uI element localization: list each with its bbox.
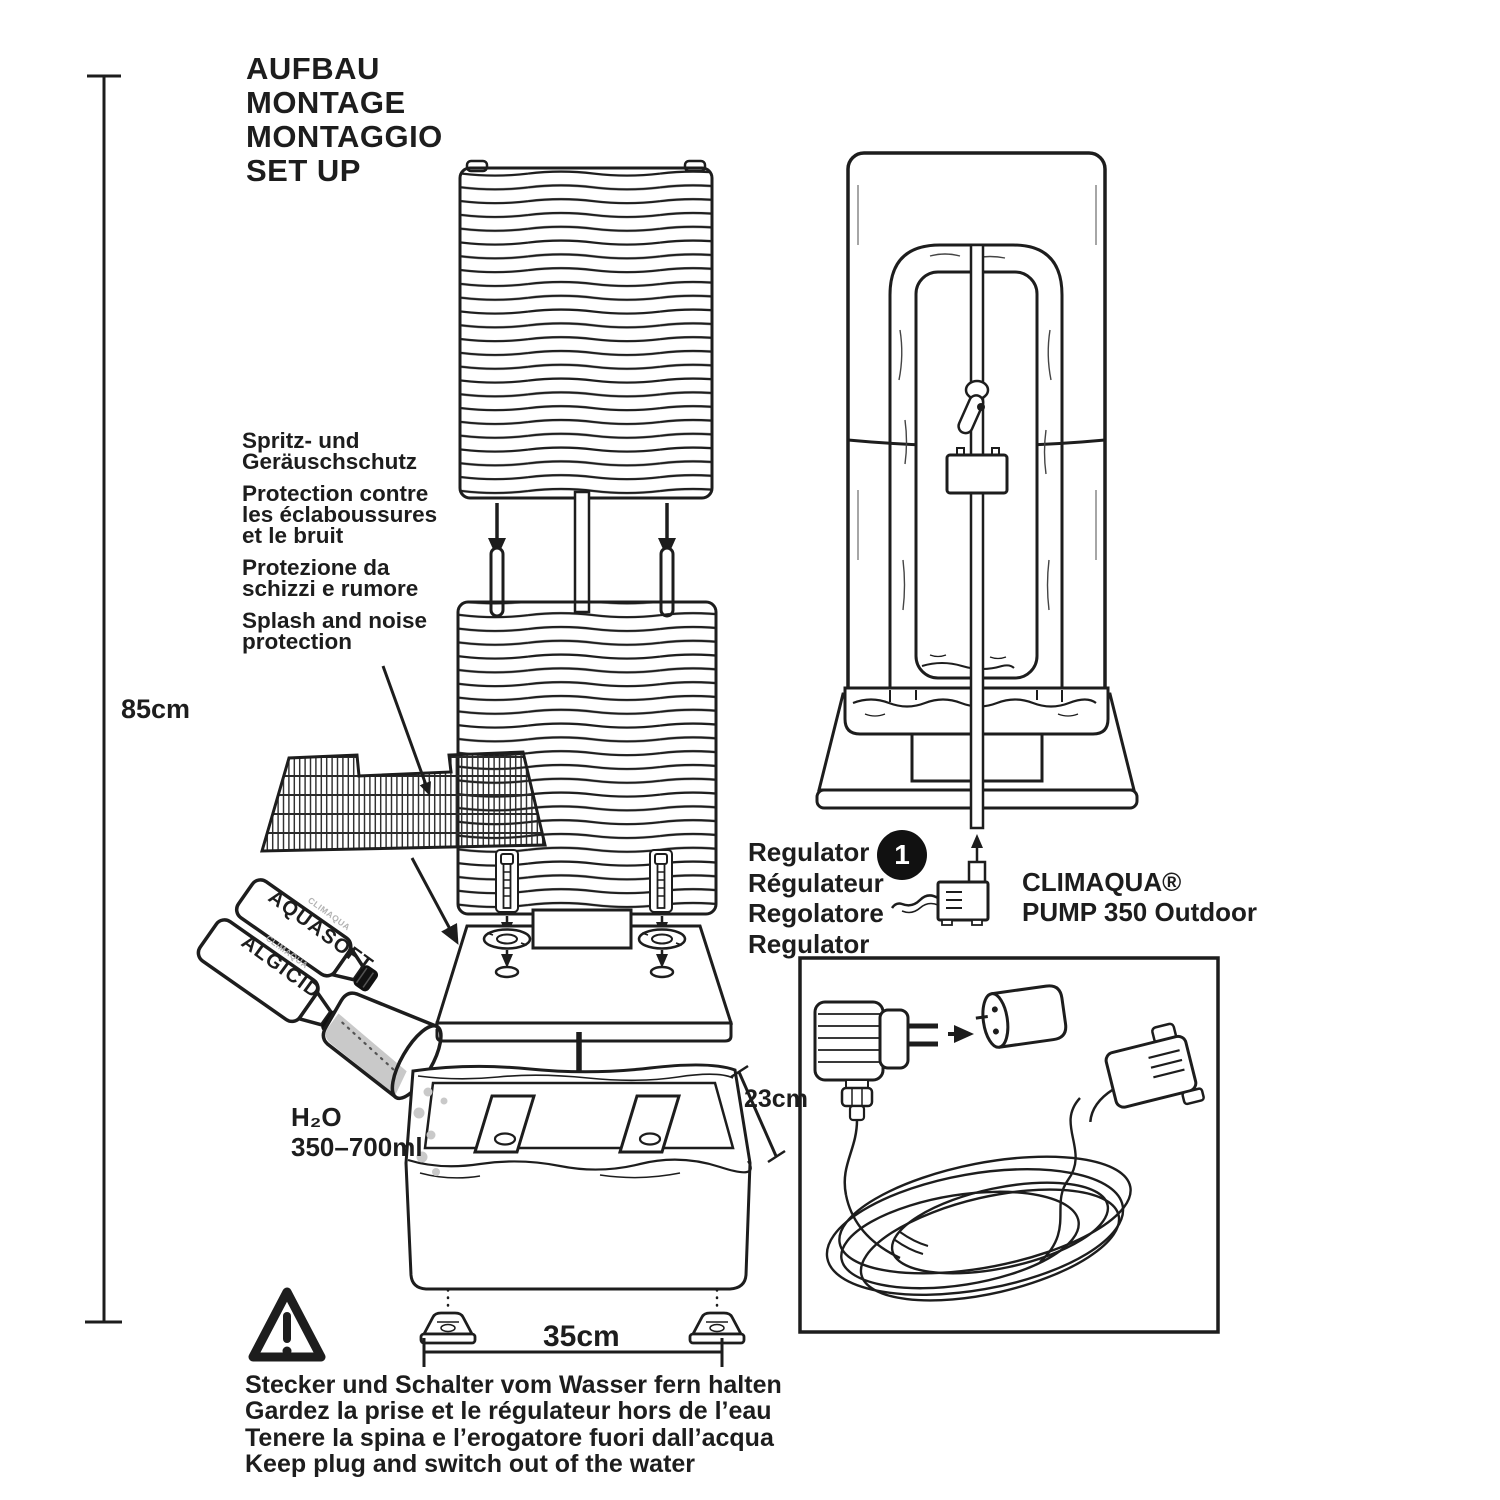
splash-label-it: Protezione da schizzi e rumore [242,557,437,599]
label-pointer-line [383,666,426,785]
riser-tube [971,245,983,828]
height-dimension-label: 85cm [121,694,190,725]
tube-connector-box [947,448,1007,493]
splash-protection-labels: Spritz- und Geräuschschutz Protection co… [242,430,437,663]
base-plate [437,910,731,1041]
warning-line-de: Stecker und Schalter vom Wasser fern hal… [245,1372,782,1398]
assembly-diagram-art [0,0,1500,1500]
pump-product-label: CLIMAQUA® PUMP 350 Outdoor [1022,867,1257,927]
page-title: AUFBAU MONTAGE MONTAGGIO SET UP [246,52,443,188]
basin [406,1065,751,1289]
warning-line-en: Keep plug and switch out of the water [245,1451,782,1477]
depth-dimension-label: 23cm [744,1085,808,1114]
instruction-sheet: AUFBAU MONTAGE MONTAGGIO SET UP 85cm Spr… [0,0,1500,1500]
warning-line-it: Tenere la spina e l’erogatore fuori dall… [245,1425,782,1451]
cable-diagram-box [800,958,1218,1332]
water-amount-label: H₂O 350–700ml [291,1102,423,1162]
safety-warning-text: Stecker und Schalter vom Wasser fern hal… [245,1372,782,1477]
center-tube-upper [575,492,589,612]
mesh-to-plate-arrow [412,858,450,929]
warning-line-fr: Gardez la prise et le régulateur hors de… [245,1398,782,1424]
splash-label-fr: Protection contre les éclaboussures et l… [242,483,437,546]
title-line-de: AUFBAU [246,52,443,86]
warning-triangle-icon [253,1292,321,1357]
splash-mesh-screen [262,752,545,851]
splash-label-de: Spritz- und Geräuschschutz [242,430,437,472]
top-column-piece [460,161,712,498]
width-dimension-label: 35cm [543,1320,620,1354]
splash-label-en: Splash and noise protection [242,610,437,652]
height-dimension-line [85,76,122,1322]
assembled-fountain-view [817,153,1137,925]
step-1-badge: 1 [877,830,927,880]
title-line-en: SET UP [246,154,443,188]
title-line-fr: MONTAGE [246,86,443,120]
title-line-it: MONTAGGIO [246,120,443,154]
regulator-labels: Regulator Régulateur Regolatore Regulato… [748,837,884,959]
